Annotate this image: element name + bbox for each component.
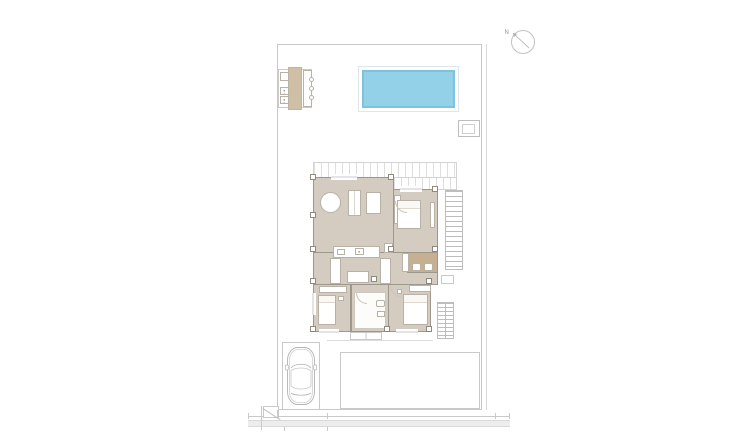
column-pillar [310,174,316,180]
stool-icon [309,95,314,100]
toilet-icon [412,263,421,271]
window [396,329,418,335]
survey-tick [509,413,510,419]
column-pillar [388,246,394,252]
boundary-return-line [261,406,262,430]
exterior-stair-upper [445,190,463,270]
exterior-stair-lower [437,302,454,339]
window [331,174,357,180]
sink-icon [377,311,385,317]
hob-icon [355,248,364,255]
column-pillar [310,278,316,284]
curb-tick [327,427,328,431]
washing-machine [441,275,454,284]
column-pillar [310,326,316,332]
survey-tick [248,413,249,419]
dining-table-icon [348,190,361,216]
sofa-icon [366,192,381,214]
kitchen-counter [330,258,341,284]
pillow [319,296,335,303]
column-pillar [310,246,316,252]
pool [362,70,455,108]
window [319,329,339,335]
stool-icon [309,86,314,91]
burner-icon [280,96,289,104]
bed-icon [403,294,428,325]
sink-icon [337,249,345,255]
curb-tick [284,427,285,431]
outdoor-sink-icon [280,72,289,81]
shelf [430,202,435,228]
car-icon [285,346,317,406]
wardrobe [409,285,431,292]
bed-icon [318,295,336,325]
column-pillar [310,212,316,218]
outdoor-kitchen-counter-strip [288,67,302,110]
column-pillar [432,246,438,252]
toilet-icon [376,300,385,307]
column-pillar [384,326,390,332]
plot-boundary-fence-line [486,44,487,410]
survey-tick [495,413,496,419]
terrace-outline [340,352,480,409]
shower [402,253,409,272]
floor-plan-canvas: N [0,0,756,443]
column-pillar [371,276,377,282]
nightstand [338,296,344,301]
wardrobe [319,286,347,293]
window [310,293,316,315]
column-pillar [426,326,432,332]
survey-tick [327,413,328,419]
compass-icon: N [503,23,541,61]
street-line [248,416,510,417]
pillow [404,295,427,303]
hall-closet [380,258,391,284]
sidewalk-band [248,420,510,427]
plot-left-extension [277,410,278,417]
equipment-box-inner [462,124,475,134]
grill-icon [280,87,289,95]
round-table-icon [320,192,341,213]
eave-outline [327,340,433,341]
compass-north-label: N [505,30,509,36]
stool-icon [309,77,314,82]
column-pillar [426,278,432,284]
column-pillar [432,186,438,192]
kitchen-island [347,271,369,283]
window [400,186,422,192]
column-pillar [388,174,394,180]
bidet-icon [424,263,433,271]
entry-steps [350,332,382,340]
